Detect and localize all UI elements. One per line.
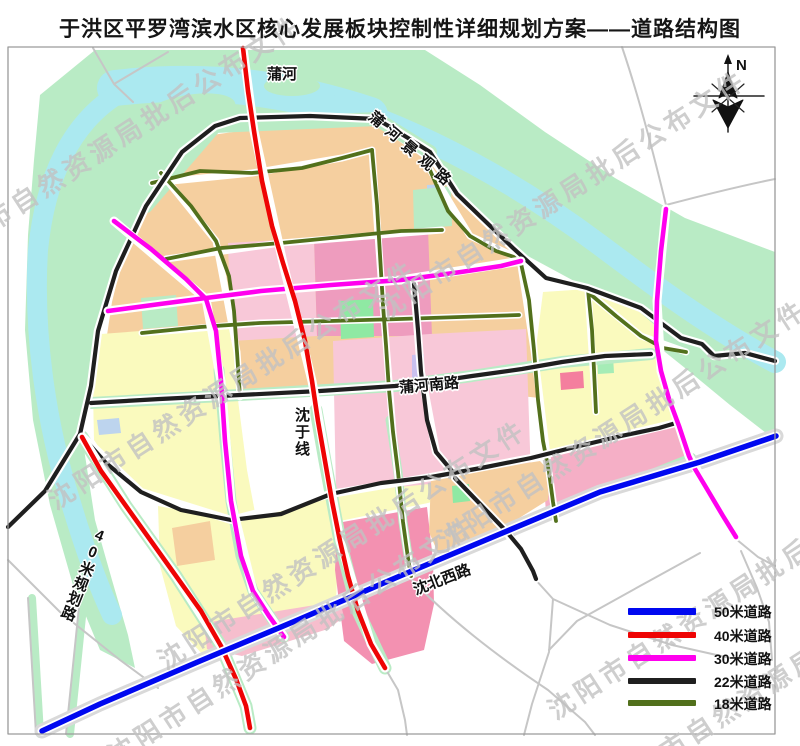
zone-red-pink-small — [560, 371, 584, 390]
page-title: 于洪区平罗湾滨水区核心发展板块控制性详细规划方案——道路结构图 — [0, 13, 800, 43]
minor-road-topright — [622, 47, 775, 205]
compass-icon — [694, 54, 764, 132]
zone-orange-small — [172, 521, 215, 566]
legend-swatch-30m — [628, 655, 696, 661]
planning-map-page: 于洪区平罗湾滨水区核心发展板块控制性详细规划方案——道路结构图 沈阳市自然资源局… — [0, 0, 800, 746]
zone-lightblue-west — [97, 418, 121, 435]
legend-label-50m: 50米道路 — [714, 602, 772, 622]
green-strip-bottomleft-1 — [32, 598, 40, 734]
minor-road-r2-tail — [385, 668, 407, 735]
legend-label-18m: 18米道路 — [714, 694, 772, 714]
minor-road-bottom-1 — [410, 578, 595, 735]
legend-swatch-40m — [628, 632, 696, 638]
legend-swatch-22m — [628, 678, 696, 684]
compass-north-label: N — [736, 57, 747, 74]
minor-road-bottom-2 — [524, 578, 730, 735]
legend-label-40m: 40米道路 — [714, 626, 772, 646]
river-island — [264, 76, 320, 96]
legend-swatch-50m — [628, 608, 696, 615]
legend-label-30m: 30米道路 — [714, 649, 772, 669]
legend-swatch-18m — [628, 700, 696, 706]
legend-label-22m: 22米道路 — [714, 672, 772, 692]
